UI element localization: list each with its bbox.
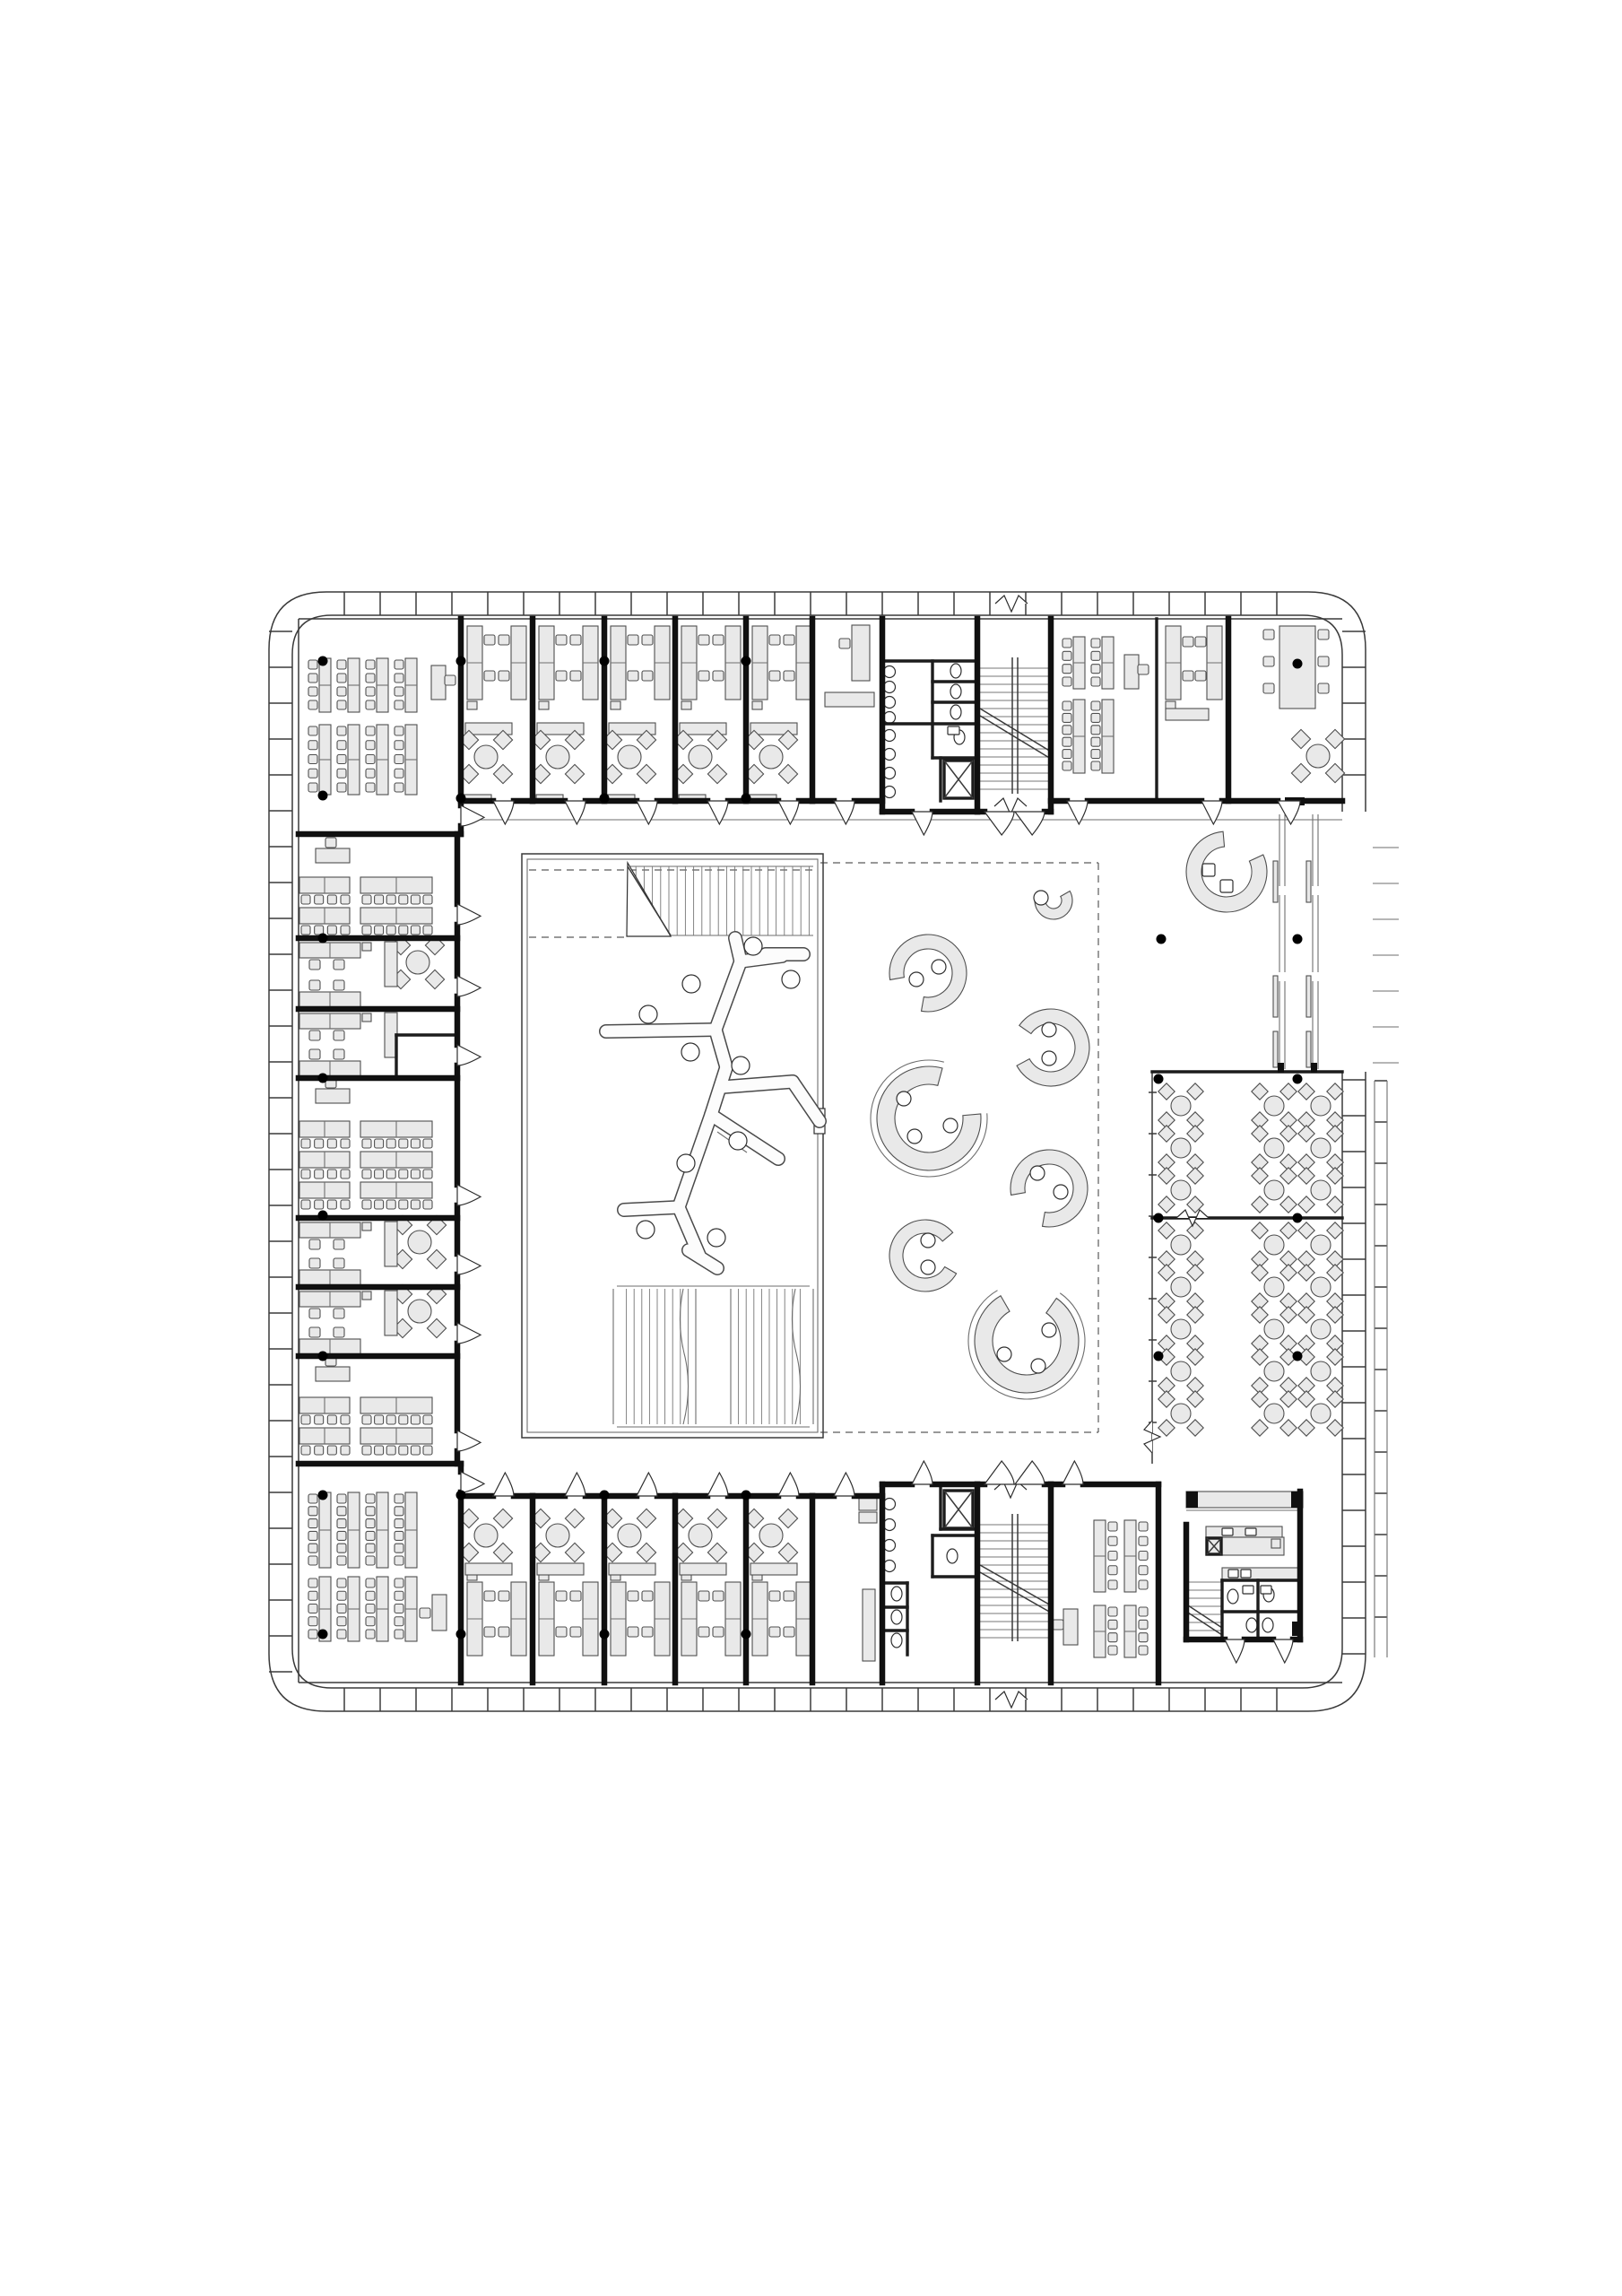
office-cell — [603, 626, 670, 784]
round-table — [744, 730, 797, 783]
desk-pair — [299, 980, 360, 1007]
cafeteria-table — [1252, 1265, 1297, 1309]
office-cell — [459, 1509, 526, 1656]
cafeteria-table — [1252, 1307, 1297, 1352]
desk-pair — [299, 1258, 360, 1285]
seminar-table-row — [299, 1428, 350, 1455]
desk-pair — [299, 1049, 360, 1076]
seminar-table-row — [360, 1121, 432, 1148]
office-cell — [673, 626, 741, 784]
lounge-pod — [1010, 1150, 1088, 1227]
cafeteria-table — [1298, 1307, 1343, 1352]
lounge-pod — [889, 935, 967, 1012]
seminar-table-row — [1063, 637, 1085, 689]
round-table — [603, 730, 655, 783]
round-table — [1291, 729, 1344, 782]
office-cell — [531, 626, 598, 784]
seminar-table-row — [366, 1492, 388, 1568]
stair-flight — [980, 1514, 1051, 1641]
seminar-table-row — [366, 725, 388, 795]
round-table — [603, 1509, 655, 1561]
seminar-table-row — [337, 658, 360, 712]
cafeteria-table — [1298, 1349, 1343, 1394]
atrium-void — [522, 854, 825, 1438]
lounge-pod — [1017, 1009, 1089, 1086]
round-table — [393, 1215, 446, 1268]
cafeteria-table — [1252, 1126, 1297, 1170]
seminar-table-row — [395, 1577, 417, 1641]
seminar-table-row — [299, 877, 350, 904]
seminar-table-row — [337, 1577, 360, 1641]
cafeteria-table — [1252, 1168, 1297, 1213]
seminar-table-row — [395, 658, 417, 712]
seminar-table-row — [1094, 1520, 1117, 1592]
lounge-pod — [1034, 891, 1072, 919]
desk-pair — [299, 1222, 360, 1249]
cafeteria-table — [1158, 1168, 1203, 1213]
round-table — [393, 1284, 446, 1337]
desk-pair — [299, 1327, 360, 1354]
cafeteria-table — [1158, 1222, 1203, 1267]
cafeteria-table — [1298, 1083, 1343, 1128]
seminar-table-row — [360, 1428, 432, 1455]
seminar-table-row — [299, 1397, 350, 1424]
round-table — [673, 730, 726, 783]
cafeteria-table — [1252, 1391, 1297, 1436]
cafeteria-table — [1252, 1222, 1297, 1267]
office-cell — [459, 626, 526, 784]
cafeteria-table — [1298, 1265, 1343, 1309]
seminar-table-row — [395, 1492, 417, 1568]
office-cell — [603, 1509, 670, 1656]
branching-bench — [606, 937, 820, 1268]
office-cell — [744, 626, 811, 784]
seminar-table-row — [1124, 1605, 1148, 1657]
lounge-pods — [871, 831, 1267, 1399]
seminar-table-row — [360, 908, 432, 935]
round-table — [459, 730, 512, 783]
stair-flight — [1188, 1582, 1222, 1635]
seminar-table-row — [299, 908, 350, 935]
round-table — [744, 1509, 797, 1561]
seminar-table-row — [1124, 1520, 1148, 1592]
round-table — [673, 1509, 726, 1561]
seminar-table-row — [1063, 700, 1085, 773]
cafeteria-table — [1298, 1168, 1343, 1213]
seminar-table-row — [360, 1152, 432, 1178]
cafeteria-table — [1298, 1391, 1343, 1436]
seminar-table-row — [360, 877, 432, 904]
cafeteria-table — [1158, 1391, 1203, 1436]
cafeteria-table — [1158, 1083, 1203, 1128]
seminar-table-row — [337, 1492, 360, 1568]
round-table — [531, 730, 584, 783]
seminar-table-row — [337, 725, 360, 795]
floor-plan-drawing — [0, 0, 1622, 2296]
floor-plan-page — [0, 0, 1622, 2296]
office-cell — [1166, 626, 1222, 709]
round-table — [391, 935, 444, 988]
lounge-pod — [889, 1220, 957, 1291]
seminar-table-row — [360, 1397, 432, 1424]
office-cell — [531, 1509, 598, 1656]
cafeteria-table — [1158, 1349, 1203, 1394]
lounge-pod — [968, 1291, 1085, 1399]
seminar-table-row — [308, 1492, 331, 1568]
seminar-table-row — [366, 1577, 388, 1641]
seminar-table-row — [308, 658, 331, 712]
seminar-table-row — [395, 725, 417, 795]
desk-pair — [299, 943, 360, 970]
seminar-table-row — [1091, 700, 1114, 773]
round-table — [531, 1509, 584, 1561]
desk-pair — [299, 1013, 360, 1040]
office-cell — [673, 1509, 741, 1656]
elevator — [944, 761, 973, 798]
cafeteria-table — [1252, 1083, 1297, 1128]
cafeteria-table — [1252, 1349, 1297, 1394]
cafeteria-table — [1158, 1265, 1203, 1309]
elevator — [944, 1491, 973, 1528]
seminar-table-row — [360, 1182, 432, 1209]
seminar-table-row — [299, 1121, 350, 1148]
round-table — [459, 1509, 512, 1561]
office-cell — [744, 1509, 811, 1656]
seminar-table-row — [1091, 637, 1114, 689]
seminar-table-row — [308, 725, 331, 795]
lounge-pod — [1186, 831, 1267, 912]
desk-pair — [299, 1291, 360, 1318]
cafeteria-table — [1298, 1222, 1343, 1267]
seminar-table-row — [299, 1182, 350, 1209]
cafeteria-table — [1298, 1126, 1343, 1170]
cafeteria-table — [1158, 1126, 1203, 1170]
seminar-table-row — [1094, 1605, 1117, 1657]
cafeteria-table — [1158, 1307, 1203, 1352]
seminar-table-row — [366, 658, 388, 712]
seminar-table-row — [299, 1152, 350, 1178]
stair-flight — [980, 657, 1051, 794]
lounge-pod — [871, 1060, 987, 1177]
